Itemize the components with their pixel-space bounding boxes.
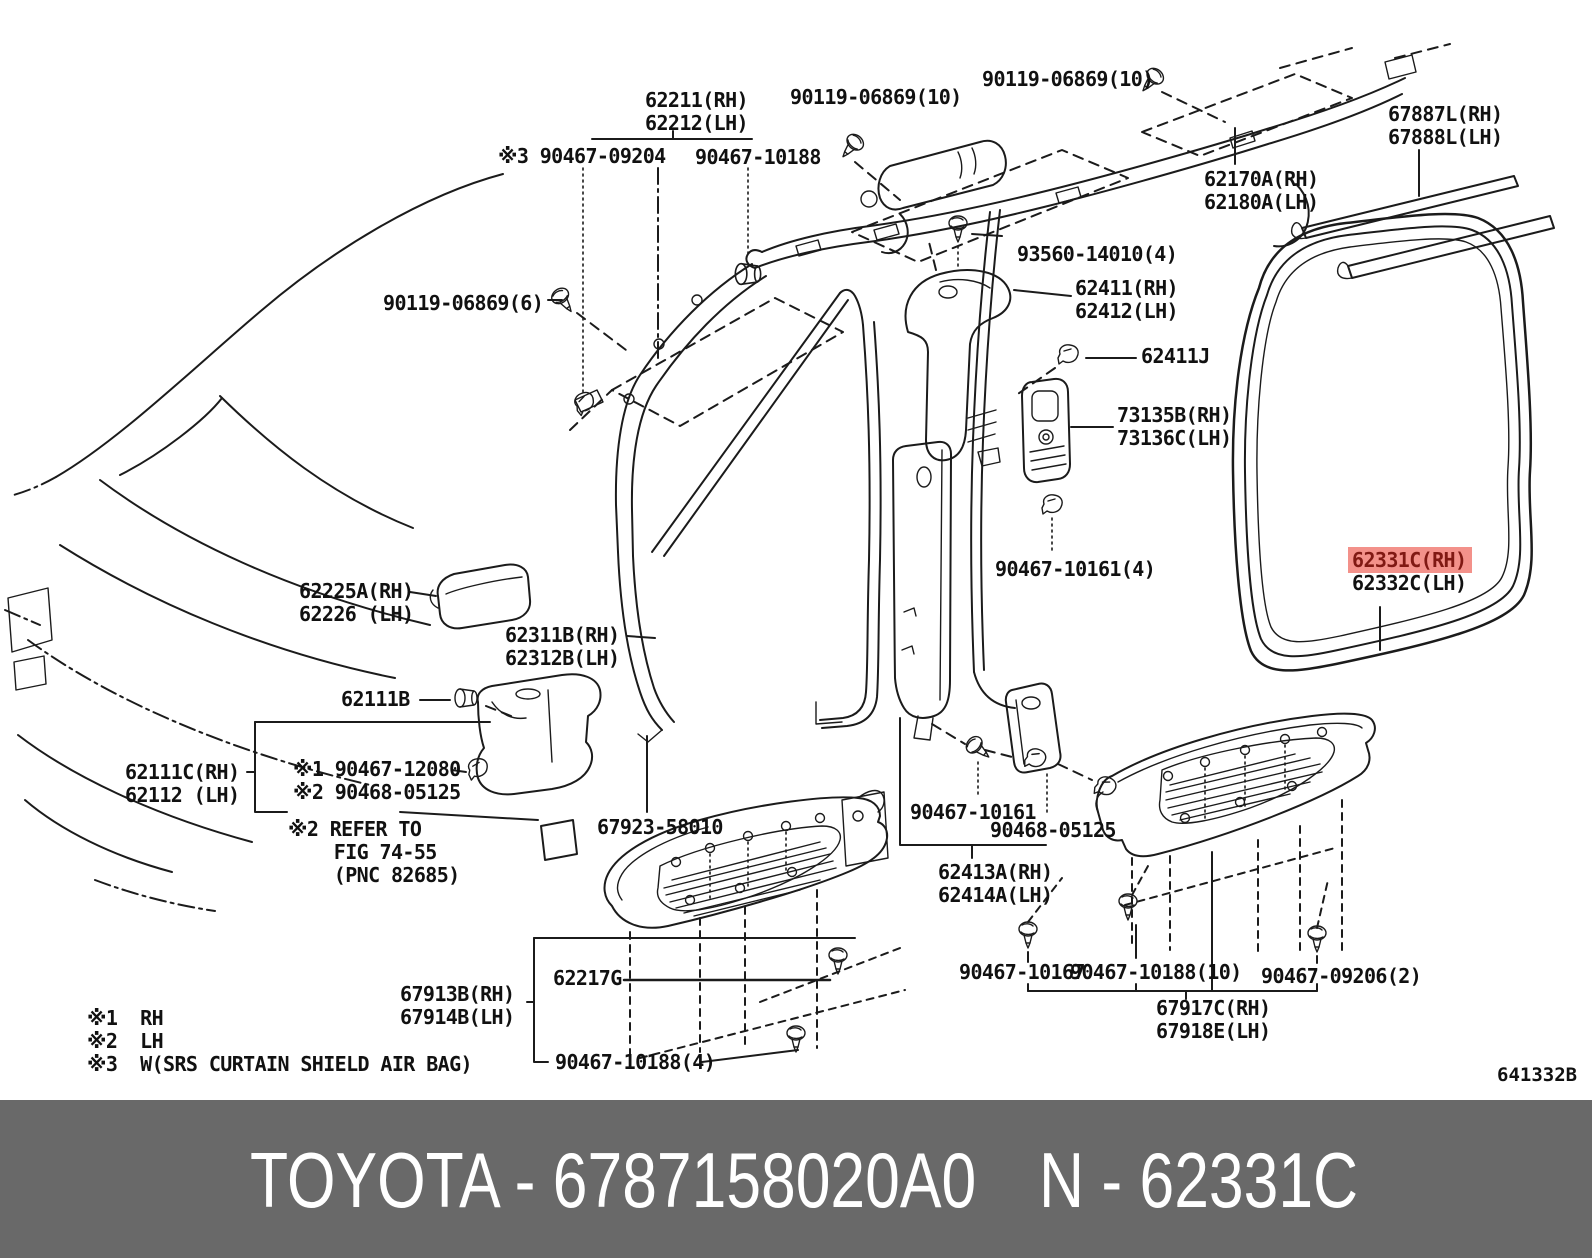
part-label-line: 62332C(LH) bbox=[1352, 572, 1466, 595]
part-label-90119-06869-6: 90119-06869(6) bbox=[383, 292, 543, 315]
door-opening-weatherstrip bbox=[1233, 214, 1532, 670]
part-label-line: 62312B(LH) bbox=[505, 647, 619, 670]
part-label-90467-10188-top: 90467-10188 bbox=[695, 146, 821, 169]
part-label-90468-05125: 90468-05125 bbox=[990, 819, 1116, 842]
footer-banner: TOYOTA - 6787158020A0 N - 62331C bbox=[0, 1100, 1592, 1258]
part-label-line: 62412(LH) bbox=[1075, 300, 1178, 323]
part-label-67923-58010: 67923-58010 bbox=[597, 816, 723, 839]
part-label-line: 90467-10188(4) bbox=[555, 1051, 715, 1074]
part-label-73135-73136: 73135B(RH)73136C(LH) bbox=[1117, 404, 1231, 450]
part-label-line: 62414A(LH) bbox=[938, 884, 1052, 907]
front-pillar-garnish-group bbox=[430, 264, 880, 860]
part-label-line: ※1 90467-12080 bbox=[293, 758, 461, 781]
part-label-line: 62111B bbox=[341, 688, 410, 711]
part-label-line: ※2 REFER TO bbox=[288, 818, 460, 841]
part-label-62411J: 62411J bbox=[1141, 345, 1210, 368]
part-label-90467-10167: 90467-10167 bbox=[959, 961, 1085, 984]
part-label-line: 73136C(LH) bbox=[1117, 427, 1231, 450]
part-label-line: 67917C(RH) bbox=[1156, 997, 1270, 1020]
part-label-line: 90119-06869(6) bbox=[383, 292, 543, 315]
screw-icon bbox=[1119, 894, 1137, 920]
part-label-line: 67888L(LH) bbox=[1388, 126, 1502, 149]
part-label-67887-67888: 67887L(RH)67888L(LH) bbox=[1388, 103, 1502, 149]
screw-icon bbox=[1308, 926, 1326, 952]
clip-icon bbox=[1058, 345, 1078, 364]
part-label-line: 62170A(RH) bbox=[1204, 168, 1318, 191]
part-label-62170-62180: 62170A(RH)62180A(LH) bbox=[1204, 168, 1318, 214]
part-label-line: 67914B(LH) bbox=[400, 1006, 514, 1029]
part-label-line: 62411(RH) bbox=[1075, 277, 1178, 300]
part-label-line: 62180A(LH) bbox=[1204, 191, 1318, 214]
part-label-line: 62112 (LH) bbox=[125, 784, 239, 807]
fasteners bbox=[455, 65, 1326, 1052]
part-label-line: 90467-09206(2) bbox=[1261, 965, 1421, 988]
clip-icon bbox=[571, 389, 598, 416]
part-label-90119-06869-10-b: 90119-06869(10) bbox=[982, 68, 1154, 91]
screw-icon bbox=[829, 948, 847, 974]
part-label-line: 90119-06869(10) bbox=[982, 68, 1154, 91]
part-label-62217G: 62217G bbox=[553, 967, 622, 990]
part-label-90467-09204: ※3 90467-09204 bbox=[498, 145, 666, 168]
part-label-62225-62226: 62225A(RH)62226 (LH) bbox=[299, 580, 413, 626]
part-label-93560-14010: 93560-14010(4) bbox=[1017, 243, 1177, 266]
screw-icon bbox=[787, 1026, 805, 1052]
part-label-line: 62413A(RH) bbox=[938, 861, 1052, 884]
part-label-67913-67914: 67913B(RH)67914B(LH) bbox=[400, 983, 514, 1029]
clip-icon bbox=[1024, 747, 1047, 769]
leader-90467-10188-4 bbox=[702, 1050, 798, 1062]
highlighted-part-label: 62331C(RH) bbox=[1348, 547, 1472, 573]
part-label-line: 62411J bbox=[1141, 345, 1210, 368]
part-label-line: 62311B(RH) bbox=[505, 624, 619, 647]
part-label-line: 90119-06869(10) bbox=[790, 86, 962, 109]
grommet-icon bbox=[455, 689, 477, 707]
parts-diagram-page: 62211(RH)62212(LH)90119-06869(10)90119-0… bbox=[0, 0, 1592, 1258]
legend-item-2: ※2 LH bbox=[87, 1029, 163, 1053]
part-label-62111C-62112: 62111C(RH)62112 (LH) bbox=[125, 761, 239, 807]
screw-icon bbox=[836, 131, 867, 162]
part-label-62311-62312: 62311B(RH)62312B(LH) bbox=[505, 624, 619, 670]
part-label-line: 90468-05125 bbox=[990, 819, 1116, 842]
banner-pnc-code: N - 62331C bbox=[1039, 1135, 1358, 1226]
part-label-refer-fig: ※2 REFER TO FIG 74-55 (PNC 82685) bbox=[288, 818, 460, 887]
part-label-line: ※3 90467-09204 bbox=[498, 145, 666, 168]
part-label-line: 62212(LH) bbox=[645, 112, 748, 135]
legend-item-1: ※1 RH bbox=[87, 1006, 163, 1030]
part-label-line: 67923-58010 bbox=[597, 816, 723, 839]
legend-item-3: ※3 W(SRS CURTAIN SHIELD AIR BAG) bbox=[87, 1052, 472, 1076]
clip-icon bbox=[1042, 495, 1062, 514]
part-label-line: 90467-10161(4) bbox=[995, 558, 1155, 581]
rear-scuff-plate bbox=[1028, 714, 1375, 999]
part-label-62111B: 62111B bbox=[341, 688, 410, 711]
part-label-62413-62414: 62413A(RH)62414A(LH) bbox=[938, 861, 1052, 907]
part-label-62331-62332: 62331C(RH)62332C(LH) bbox=[1352, 549, 1466, 595]
part-label-line: (PNC 82685) bbox=[288, 864, 460, 887]
part-label-line: 67887L(RH) bbox=[1388, 103, 1502, 126]
part-label-line: 90467-10188 bbox=[695, 146, 821, 169]
part-label-line: 73135B(RH) bbox=[1117, 404, 1231, 427]
screw-icon bbox=[1019, 922, 1037, 948]
part-label-67917-67918: 67917C(RH)67918E(LH) bbox=[1156, 997, 1270, 1043]
part-label-line: FIG 74-55 bbox=[288, 841, 460, 864]
screw-icon bbox=[963, 733, 994, 764]
part-label-90467-12080-90468-05125: ※1 90467-12080※2 90468-05125 bbox=[293, 758, 461, 804]
part-label-line: 62226 (LH) bbox=[299, 603, 413, 626]
part-label-90467-10188-10: 90467-10188(10) bbox=[1070, 961, 1242, 984]
part-label-line: ※2 90468-05125 bbox=[293, 781, 461, 804]
part-label-line: 67918E(LH) bbox=[1156, 1020, 1270, 1043]
part-label-90119-06869-10-a: 90119-06869(10) bbox=[790, 86, 962, 109]
part-label-line: 62225A(RH) bbox=[299, 580, 413, 603]
part-label-90467-10161-4: 90467-10161(4) bbox=[995, 558, 1155, 581]
part-label-line: 90467-10188(10) bbox=[1070, 961, 1242, 984]
part-label-line: 62217G bbox=[553, 967, 622, 990]
figure-code: 641332B bbox=[1497, 1064, 1577, 1086]
part-label-line: 62211(RH) bbox=[645, 89, 748, 112]
part-label-line: 90467-10167 bbox=[959, 961, 1085, 984]
part-label-90467-09206-2: 90467-09206(2) bbox=[1261, 965, 1421, 988]
part-label-90467-10188-4: 90467-10188(4) bbox=[555, 1051, 715, 1074]
part-label-62411-62412: 62411(RH)62412(LH) bbox=[1075, 277, 1178, 323]
part-label-line: 67913B(RH) bbox=[400, 983, 514, 1006]
part-label-line: 62111C(RH) bbox=[125, 761, 239, 784]
screw-icon bbox=[949, 216, 967, 242]
banner-part-number: TOYOTA - 6787158020A0 bbox=[250, 1135, 976, 1226]
part-label-line: 93560-14010(4) bbox=[1017, 243, 1177, 266]
leader-lines bbox=[247, 128, 1235, 820]
part-label-62211-62212: 62211(RH)62212(LH) bbox=[645, 89, 748, 135]
screw-icon bbox=[549, 285, 579, 317]
